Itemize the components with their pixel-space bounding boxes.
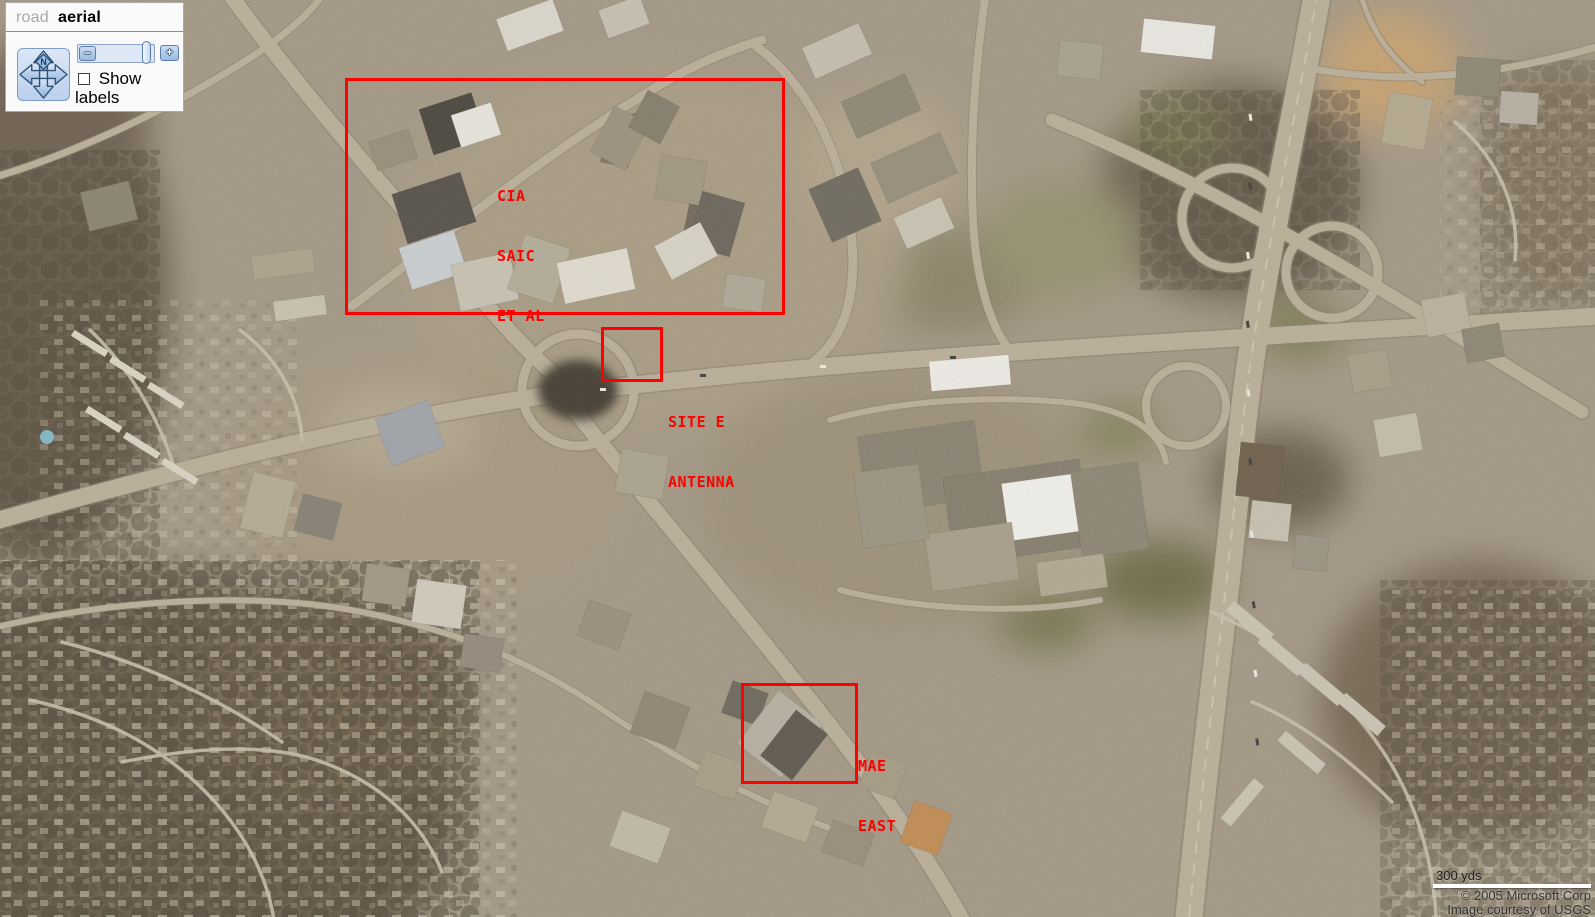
attribution-line-1: © 2005 Microsoft Corp bbox=[1447, 889, 1591, 903]
pan-down-arrow[interactable] bbox=[34, 78, 54, 98]
annotation-line: SAIC bbox=[497, 246, 545, 266]
annotation-box-mae-east bbox=[741, 683, 858, 784]
pan-right-arrow[interactable] bbox=[47, 65, 67, 85]
pan-left-arrow[interactable] bbox=[20, 65, 40, 85]
tab-road[interactable]: road bbox=[16, 9, 49, 27]
annotation-box-site-e bbox=[601, 327, 663, 382]
annotation-label-mae-east: MAE EAST bbox=[858, 716, 896, 876]
show-labels-control[interactable]: Show labels bbox=[75, 69, 177, 107]
tab-aerial[interactable]: aerial bbox=[58, 9, 101, 27]
annotation-line: CIA bbox=[497, 186, 545, 206]
attribution-line-2: Image courtesy of USGS bbox=[1447, 903, 1591, 917]
map-control-panel: road aerial N − + bbox=[5, 2, 184, 112]
compass-icon: N bbox=[18, 49, 69, 100]
map-scale: 300 yds bbox=[1433, 868, 1591, 888]
annotation-line: SITE E bbox=[668, 412, 735, 432]
scale-label: 300 yds bbox=[1436, 868, 1591, 883]
annotation-label-site-e: SITE E ANTENNA bbox=[668, 372, 735, 532]
map-viewport[interactable]: CIA SAIC ET AL SITE E ANTENNA MAE EAST r… bbox=[0, 0, 1595, 917]
zoom-slider-thumb[interactable] bbox=[142, 41, 151, 64]
annotation-label-cia-saic: CIA SAIC ET AL bbox=[497, 146, 545, 366]
pan-compass[interactable]: N bbox=[17, 48, 70, 101]
annotation-line: ET AL bbox=[497, 306, 545, 326]
compass-north-label: N bbox=[40, 57, 46, 67]
annotation-line: EAST bbox=[858, 816, 896, 836]
annotation-line: MAE bbox=[858, 756, 896, 776]
zoom-out-button[interactable]: − bbox=[79, 46, 96, 61]
annotation-box-cia-saic bbox=[345, 78, 785, 315]
map-style-tabs: road aerial bbox=[6, 3, 183, 32]
annotation-line: ANTENNA bbox=[668, 472, 735, 492]
show-labels-checkbox[interactable] bbox=[78, 73, 90, 85]
map-attribution: © 2005 Microsoft Corp Image courtesy of … bbox=[1447, 889, 1591, 916]
zoom-in-button[interactable]: + bbox=[160, 45, 179, 61]
